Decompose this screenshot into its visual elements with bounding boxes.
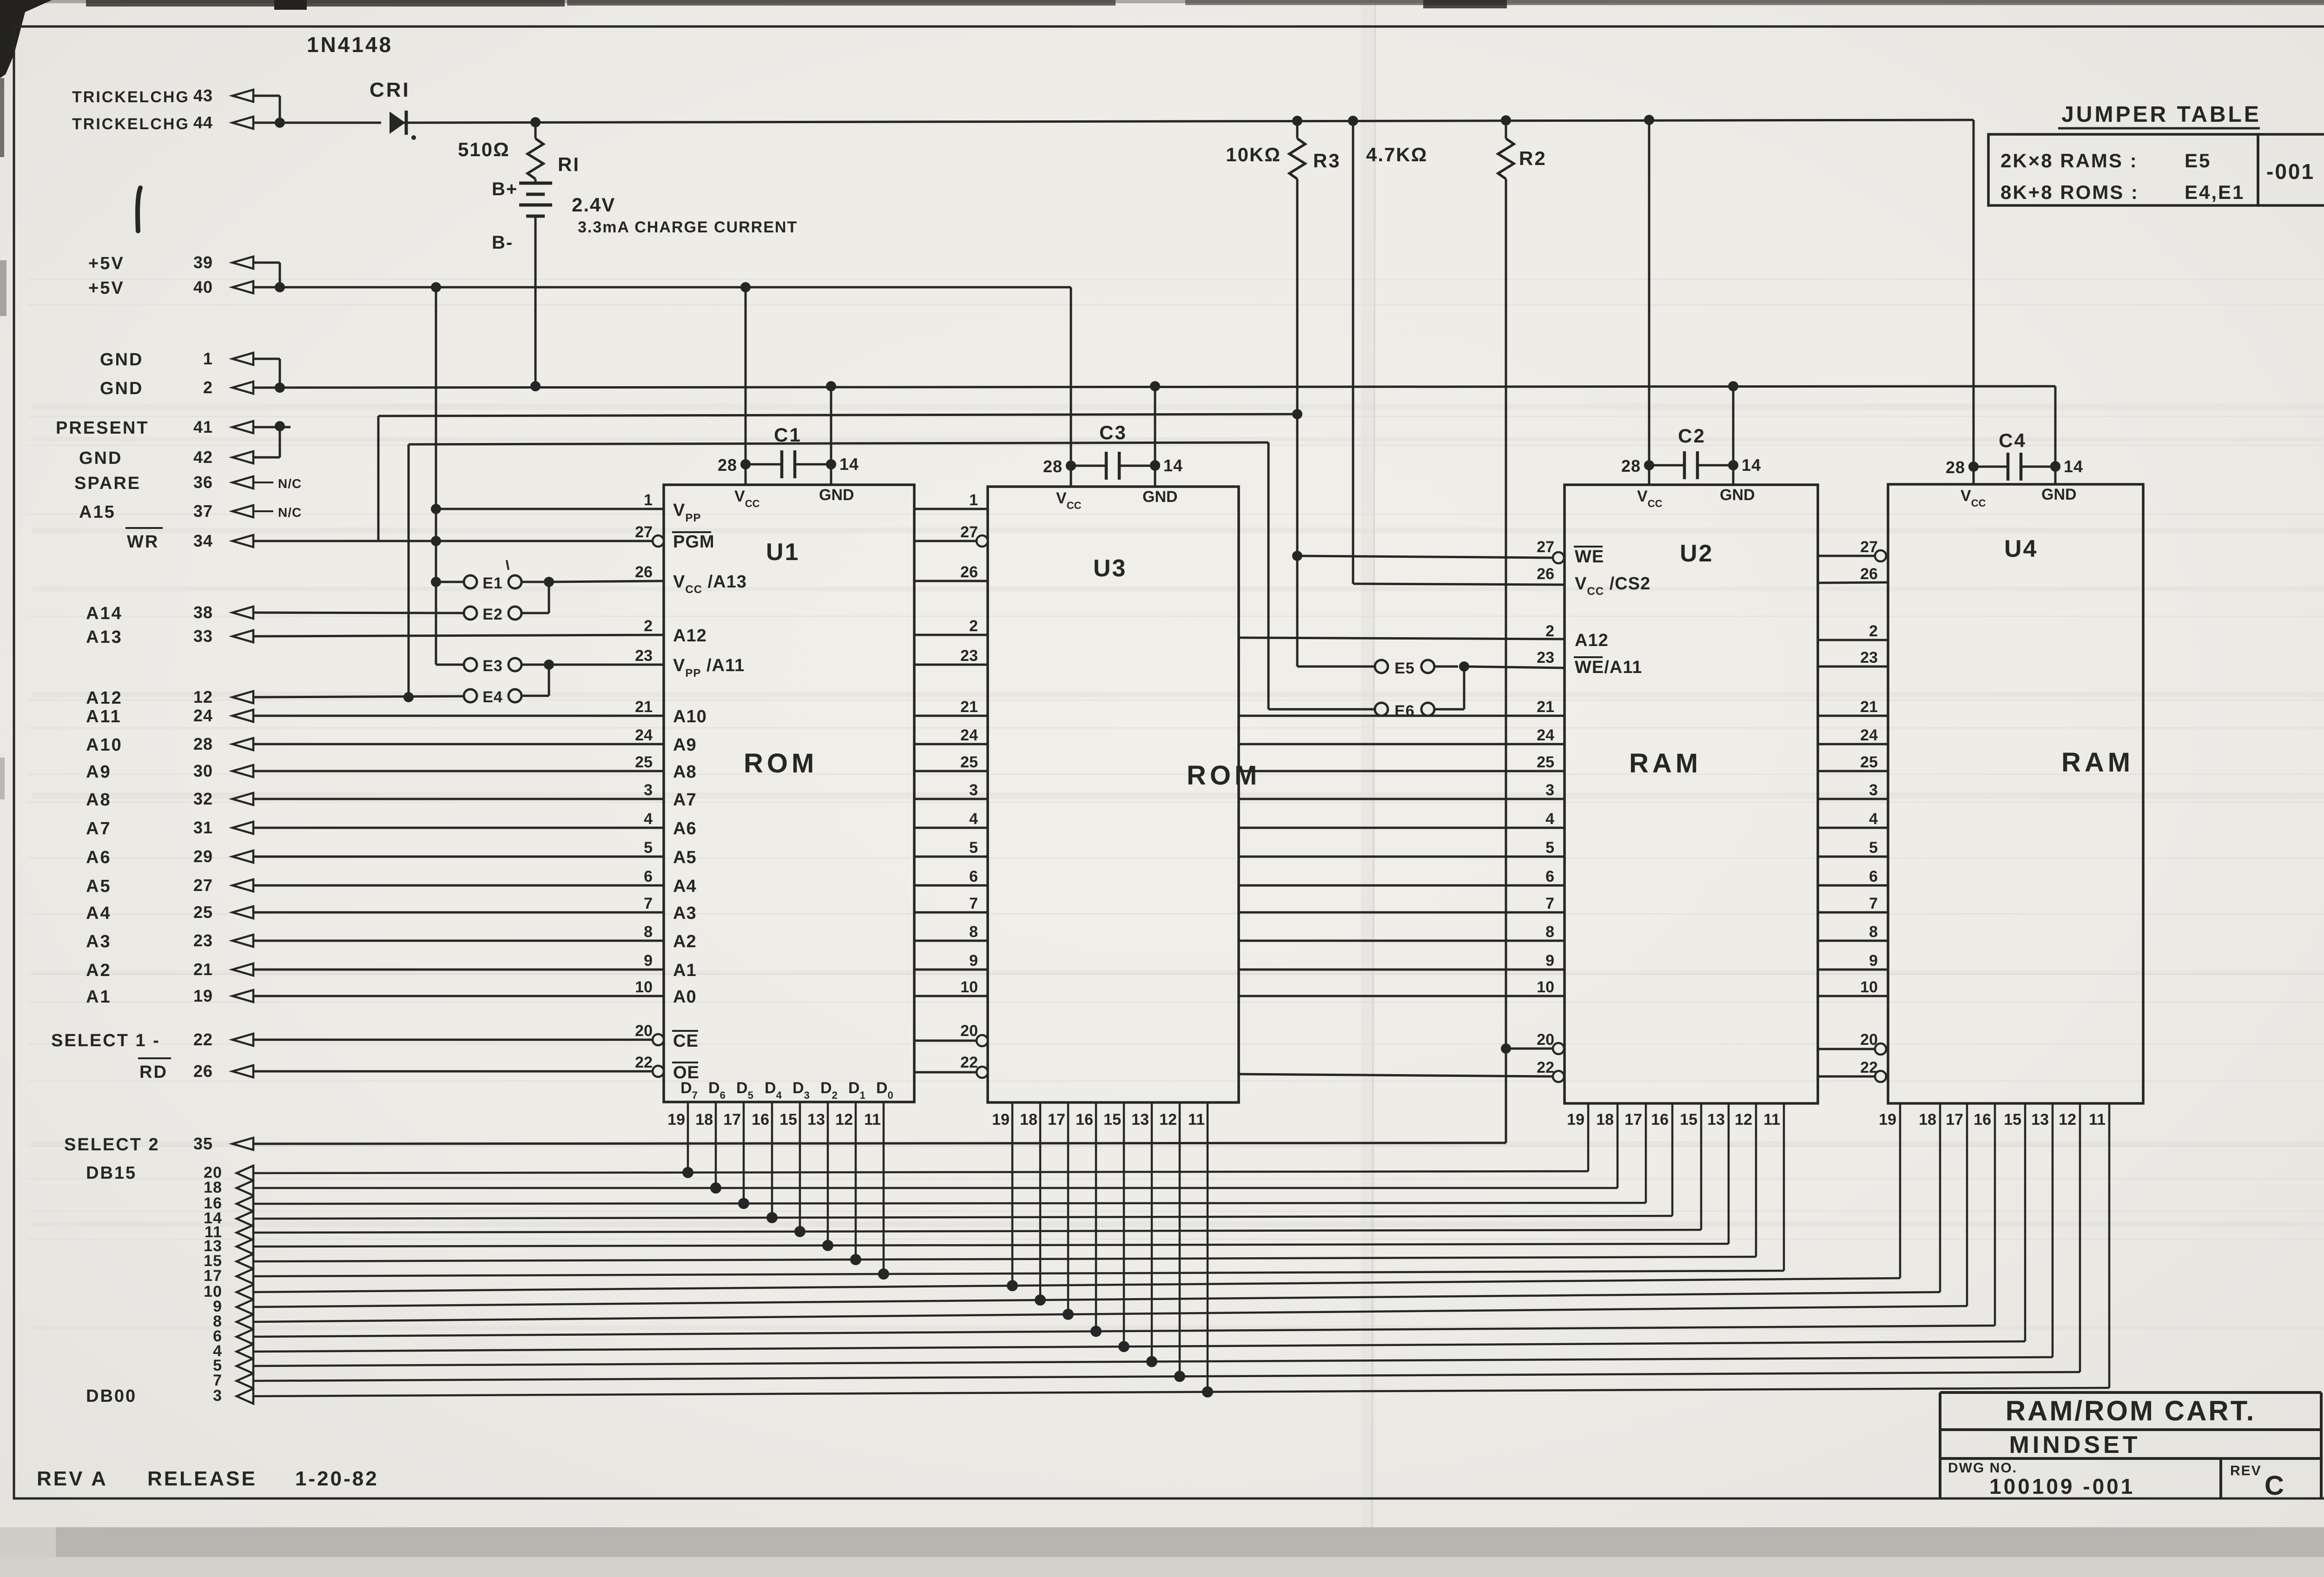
svg-text:RELEASE: RELEASE <box>147 1467 257 1490</box>
svg-text:3.3mA CHARGE CURRENT: 3.3mA CHARGE CURRENT <box>578 218 798 236</box>
svg-text:GND: GND <box>79 449 122 468</box>
svg-text:42: 42 <box>193 448 213 467</box>
svg-text:43: 43 <box>193 86 213 105</box>
svg-text:5: 5 <box>644 839 653 857</box>
svg-text:25: 25 <box>960 753 978 771</box>
svg-text:1N4148: 1N4148 <box>307 33 393 57</box>
svg-text:A8: A8 <box>86 790 112 810</box>
svg-text:6: 6 <box>644 868 653 885</box>
svg-text:25: 25 <box>193 903 213 922</box>
svg-text:E2: E2 <box>482 606 503 623</box>
svg-text:22: 22 <box>1860 1059 1878 1076</box>
svg-text:41: 41 <box>193 417 213 436</box>
svg-text:25: 25 <box>1537 753 1554 771</box>
svg-text:C1: C1 <box>774 424 802 446</box>
svg-text:A9: A9 <box>673 735 697 755</box>
svg-text:16: 16 <box>1651 1111 1669 1128</box>
svg-text:C3: C3 <box>1099 422 1127 443</box>
svg-text:15: 15 <box>2004 1111 2021 1128</box>
svg-text:24: 24 <box>1860 726 1878 744</box>
svg-text:ROM: ROM <box>744 748 818 779</box>
svg-text:27: 27 <box>960 523 978 541</box>
svg-text:A4: A4 <box>673 877 697 896</box>
svg-text:17: 17 <box>1048 1111 1065 1128</box>
svg-text:37: 37 <box>193 501 213 521</box>
svg-text:-001: -001 <box>2266 159 2315 184</box>
svg-text:26: 26 <box>960 563 978 581</box>
svg-text:A3: A3 <box>86 932 112 951</box>
svg-text:12: 12 <box>1735 1111 1752 1128</box>
svg-text:20: 20 <box>635 1022 653 1040</box>
svg-text:12: 12 <box>1159 1111 1177 1128</box>
svg-text:A11: A11 <box>86 707 122 726</box>
svg-text:WE: WE <box>1575 547 1604 567</box>
svg-text:E4,E1: E4,E1 <box>2185 181 2245 203</box>
svg-text:5: 5 <box>1869 839 1878 857</box>
svg-text:2: 2 <box>644 617 653 635</box>
svg-text:TRICKELCHG: TRICKELCHG <box>72 115 190 133</box>
svg-text:7: 7 <box>1545 895 1554 912</box>
svg-text:26: 26 <box>1860 565 1878 583</box>
svg-text:10: 10 <box>1537 978 1554 996</box>
svg-text:11: 11 <box>2089 1111 2106 1128</box>
svg-text:11: 11 <box>864 1111 881 1128</box>
svg-text:13: 13 <box>807 1111 825 1128</box>
svg-text:12: 12 <box>2059 1111 2076 1128</box>
svg-text:21: 21 <box>1860 698 1878 716</box>
svg-text:2: 2 <box>203 378 213 397</box>
svg-text:5: 5 <box>969 839 978 857</box>
svg-text:6: 6 <box>969 868 978 885</box>
svg-text:A12: A12 <box>86 688 123 708</box>
svg-text:3: 3 <box>1869 781 1878 799</box>
svg-text:CRI: CRI <box>370 79 410 101</box>
svg-text:GND: GND <box>100 350 143 370</box>
svg-text:510Ω: 510Ω <box>458 139 510 160</box>
svg-text:20: 20 <box>1860 1031 1878 1049</box>
svg-text:A3: A3 <box>673 904 697 923</box>
svg-text:36: 36 <box>193 473 213 492</box>
svg-text:DB00: DB00 <box>86 1386 137 1406</box>
svg-text:38: 38 <box>193 603 213 622</box>
svg-text:MINDSET: MINDSET <box>2009 1432 2141 1458</box>
svg-text:E3: E3 <box>482 657 503 675</box>
svg-text:GND: GND <box>1720 486 1755 504</box>
svg-text:21: 21 <box>193 960 213 979</box>
svg-text:9: 9 <box>644 952 653 970</box>
svg-text:14: 14 <box>1742 455 1761 475</box>
svg-text:22: 22 <box>1537 1059 1554 1076</box>
svg-text:A12: A12 <box>1575 631 1609 650</box>
svg-text:8: 8 <box>1869 923 1878 941</box>
svg-text:21: 21 <box>635 698 653 716</box>
svg-text:19: 19 <box>1567 1111 1585 1128</box>
svg-text:1: 1 <box>644 491 653 509</box>
svg-text:R2: R2 <box>1519 147 1547 169</box>
svg-text:20: 20 <box>960 1022 978 1040</box>
svg-text:SELECT 2: SELECT 2 <box>64 1135 160 1155</box>
svg-text:24: 24 <box>635 726 653 744</box>
svg-text:44: 44 <box>193 113 213 132</box>
svg-text:PGM: PGM <box>673 532 715 552</box>
svg-text:19: 19 <box>1879 1111 1896 1128</box>
svg-text:2K×8 RAMS :: 2K×8 RAMS : <box>2000 150 2138 172</box>
svg-text:39: 39 <box>193 253 213 272</box>
svg-text:25: 25 <box>635 753 653 771</box>
svg-text:E5: E5 <box>2185 150 2211 172</box>
svg-text:DWG NO.: DWG NO. <box>1948 1460 2017 1476</box>
svg-text:28: 28 <box>193 734 213 753</box>
svg-text:A8: A8 <box>673 762 697 782</box>
svg-text:15: 15 <box>779 1111 797 1128</box>
svg-text:26: 26 <box>1537 565 1554 583</box>
svg-text:9: 9 <box>1545 952 1554 970</box>
svg-text:17: 17 <box>1946 1111 1963 1128</box>
svg-text:28: 28 <box>718 455 737 475</box>
svg-text:18: 18 <box>1596 1111 1614 1128</box>
svg-text:4: 4 <box>1869 810 1878 828</box>
svg-text:16: 16 <box>1076 1111 1093 1128</box>
svg-text:7: 7 <box>644 895 653 912</box>
svg-text:6: 6 <box>1869 868 1878 885</box>
svg-text:5: 5 <box>1545 839 1554 857</box>
svg-text:RAM: RAM <box>1629 748 1702 779</box>
svg-text:GND: GND <box>2041 486 2077 503</box>
svg-text:28: 28 <box>1946 458 1965 477</box>
svg-text:22: 22 <box>960 1054 978 1071</box>
svg-text:19: 19 <box>193 986 213 1005</box>
svg-text:18: 18 <box>1919 1111 1936 1128</box>
svg-text:22: 22 <box>193 1030 213 1049</box>
svg-text:A6: A6 <box>673 819 697 838</box>
svg-text:8: 8 <box>969 923 978 941</box>
svg-text:DB15: DB15 <box>86 1163 137 1183</box>
svg-text:A9: A9 <box>86 762 112 782</box>
svg-text:WE/A11: WE/A11 <box>1575 658 1642 677</box>
svg-text:+5V: +5V <box>88 254 125 273</box>
svg-text:10: 10 <box>960 978 978 996</box>
svg-text:23: 23 <box>1860 649 1878 666</box>
svg-text:8: 8 <box>1545 923 1554 941</box>
svg-text:A7: A7 <box>86 819 112 838</box>
svg-text:18: 18 <box>695 1111 713 1128</box>
svg-text:30: 30 <box>193 761 213 780</box>
svg-text:26: 26 <box>635 563 653 581</box>
svg-text:E4: E4 <box>482 688 503 706</box>
svg-text:3: 3 <box>644 781 653 799</box>
svg-text:RD: RD <box>139 1062 168 1082</box>
svg-text:27: 27 <box>193 876 213 895</box>
svg-text:27: 27 <box>1537 538 1554 556</box>
svg-text:A6: A6 <box>86 848 112 867</box>
svg-text:17: 17 <box>723 1111 741 1128</box>
svg-text:RAM: RAM <box>2061 747 2134 778</box>
svg-text:4: 4 <box>1545 810 1554 828</box>
svg-text:GND: GND <box>1142 488 1178 506</box>
svg-text:A15: A15 <box>79 502 116 522</box>
svg-text:7: 7 <box>969 895 978 912</box>
svg-text:28: 28 <box>1043 457 1063 476</box>
svg-text:17: 17 <box>1624 1111 1642 1128</box>
svg-text:32: 32 <box>193 789 213 808</box>
svg-text:16: 16 <box>1974 1111 1991 1128</box>
svg-text:13: 13 <box>2031 1111 2049 1128</box>
svg-text:4: 4 <box>969 810 978 828</box>
svg-text:12: 12 <box>193 687 213 706</box>
svg-text:A14: A14 <box>86 604 123 623</box>
svg-text:33: 33 <box>193 627 213 646</box>
svg-text:7: 7 <box>1869 895 1878 912</box>
svg-text:3: 3 <box>1545 781 1554 799</box>
svg-text:GND: GND <box>819 486 854 504</box>
svg-text:C: C <box>2265 1471 2284 1501</box>
svg-text:29: 29 <box>193 847 213 866</box>
svg-text:E1: E1 <box>482 574 503 592</box>
svg-text:PRESENT: PRESENT <box>56 418 149 438</box>
svg-text:27: 27 <box>635 523 653 541</box>
svg-text:SELECT 1 -: SELECT 1 - <box>51 1031 160 1050</box>
svg-text:24: 24 <box>960 726 978 744</box>
svg-text:R3: R3 <box>1313 150 1341 172</box>
svg-text:2: 2 <box>969 617 978 635</box>
svg-text:10: 10 <box>1860 978 1878 996</box>
svg-text:14: 14 <box>839 455 859 474</box>
svg-text:A2: A2 <box>673 932 697 951</box>
svg-text:U1: U1 <box>766 539 799 566</box>
svg-text:C4: C4 <box>1999 429 2027 451</box>
svg-text:A1: A1 <box>86 987 112 1007</box>
svg-text:27: 27 <box>1860 538 1878 556</box>
svg-text:10: 10 <box>635 978 653 996</box>
svg-text:23: 23 <box>193 931 213 950</box>
svg-text:22: 22 <box>635 1054 653 1071</box>
svg-text:+5V: +5V <box>88 278 125 298</box>
svg-text:E5: E5 <box>1394 660 1415 677</box>
svg-text:TRICKELCHG: TRICKELCHG <box>72 88 190 106</box>
svg-text:A2: A2 <box>86 961 112 980</box>
svg-text:23: 23 <box>1537 649 1554 666</box>
svg-text:2: 2 <box>1545 622 1554 640</box>
svg-text:U4: U4 <box>2004 535 2038 562</box>
svg-text:U3: U3 <box>1093 555 1127 582</box>
svg-text:11: 11 <box>1763 1111 1780 1128</box>
svg-text:A7: A7 <box>673 790 697 810</box>
svg-text:14: 14 <box>1163 456 1183 475</box>
svg-text:26: 26 <box>193 1062 213 1081</box>
svg-text:31: 31 <box>193 818 213 837</box>
svg-text:13: 13 <box>1707 1111 1725 1128</box>
svg-text:B+: B+ <box>492 179 518 199</box>
svg-text:17: 17 <box>204 1267 222 1285</box>
svg-text:25: 25 <box>1860 753 1878 771</box>
svg-text:16: 16 <box>752 1111 769 1128</box>
svg-text:9: 9 <box>1869 952 1878 970</box>
svg-text:C2: C2 <box>1678 425 1706 447</box>
svg-text:4.7KΩ: 4.7KΩ <box>1366 144 1427 165</box>
svg-text:2.4V: 2.4V <box>572 194 615 216</box>
svg-text:A10: A10 <box>673 707 707 726</box>
svg-text:14: 14 <box>2064 457 2083 476</box>
svg-text:100109 -001: 100109 -001 <box>1989 1474 2135 1498</box>
svg-text:REV A: REV A <box>37 1467 108 1490</box>
svg-text:13: 13 <box>1131 1111 1149 1128</box>
svg-text:19: 19 <box>992 1111 1010 1128</box>
svg-text:12: 12 <box>835 1111 853 1128</box>
svg-text:23: 23 <box>635 647 653 665</box>
svg-text:B-: B- <box>492 232 513 253</box>
svg-text:RI: RI <box>558 153 580 175</box>
svg-text:GND: GND <box>100 379 143 398</box>
svg-text:24: 24 <box>193 706 213 725</box>
svg-text:40: 40 <box>193 277 213 297</box>
svg-text:JUMPER TABLE: JUMPER TABLE <box>2061 102 2261 127</box>
svg-text:8K+8 ROMS :: 8K+8 ROMS : <box>2000 181 2139 203</box>
svg-text:A10: A10 <box>86 735 123 755</box>
svg-text:23: 23 <box>960 647 978 665</box>
svg-text:RAM/ROM CART.: RAM/ROM CART. <box>2006 1395 2256 1426</box>
svg-text:11: 11 <box>1188 1111 1205 1128</box>
svg-text:21: 21 <box>1537 698 1554 716</box>
svg-text:N/C: N/C <box>278 505 302 520</box>
svg-text:E6: E6 <box>1394 702 1415 720</box>
svg-text:18: 18 <box>204 1179 222 1196</box>
svg-text:U2: U2 <box>1680 540 1713 567</box>
svg-text:ROM: ROM <box>1187 760 1261 791</box>
svg-text:2: 2 <box>1869 622 1878 640</box>
svg-text:28: 28 <box>1621 456 1641 475</box>
svg-text:3: 3 <box>969 781 978 799</box>
svg-text:1-20-82: 1-20-82 <box>295 1467 379 1490</box>
svg-text:20: 20 <box>1537 1031 1554 1049</box>
svg-text:1: 1 <box>203 349 213 368</box>
svg-text:15: 15 <box>1103 1111 1121 1128</box>
svg-text:N/C: N/C <box>278 476 302 491</box>
svg-text:3: 3 <box>213 1387 222 1405</box>
svg-text:35: 35 <box>193 1134 213 1153</box>
svg-text:8: 8 <box>644 923 653 941</box>
svg-text:19: 19 <box>667 1111 685 1128</box>
svg-text:A4: A4 <box>86 904 112 923</box>
svg-text:4: 4 <box>644 810 653 828</box>
svg-text:6: 6 <box>1545 868 1554 885</box>
svg-text:CE: CE <box>673 1031 699 1051</box>
svg-text:24: 24 <box>1537 726 1554 744</box>
svg-text:SPARE: SPARE <box>74 474 141 493</box>
svg-text:A0: A0 <box>673 987 697 1007</box>
svg-text:A5: A5 <box>86 877 112 896</box>
svg-text:18: 18 <box>1020 1111 1037 1128</box>
svg-text:34: 34 <box>193 531 213 550</box>
svg-text:A1: A1 <box>673 961 697 980</box>
svg-text:21: 21 <box>960 698 978 716</box>
svg-text:10KΩ: 10KΩ <box>1226 144 1281 165</box>
svg-text:15: 15 <box>1680 1111 1697 1128</box>
svg-text:9: 9 <box>969 952 978 970</box>
svg-text:A12: A12 <box>673 626 707 646</box>
svg-text:WR: WR <box>127 532 159 552</box>
svg-text:A5: A5 <box>673 848 697 867</box>
svg-text:A13: A13 <box>86 627 123 647</box>
svg-text:1: 1 <box>969 491 978 509</box>
svg-text:REV: REV <box>2230 1463 2262 1478</box>
